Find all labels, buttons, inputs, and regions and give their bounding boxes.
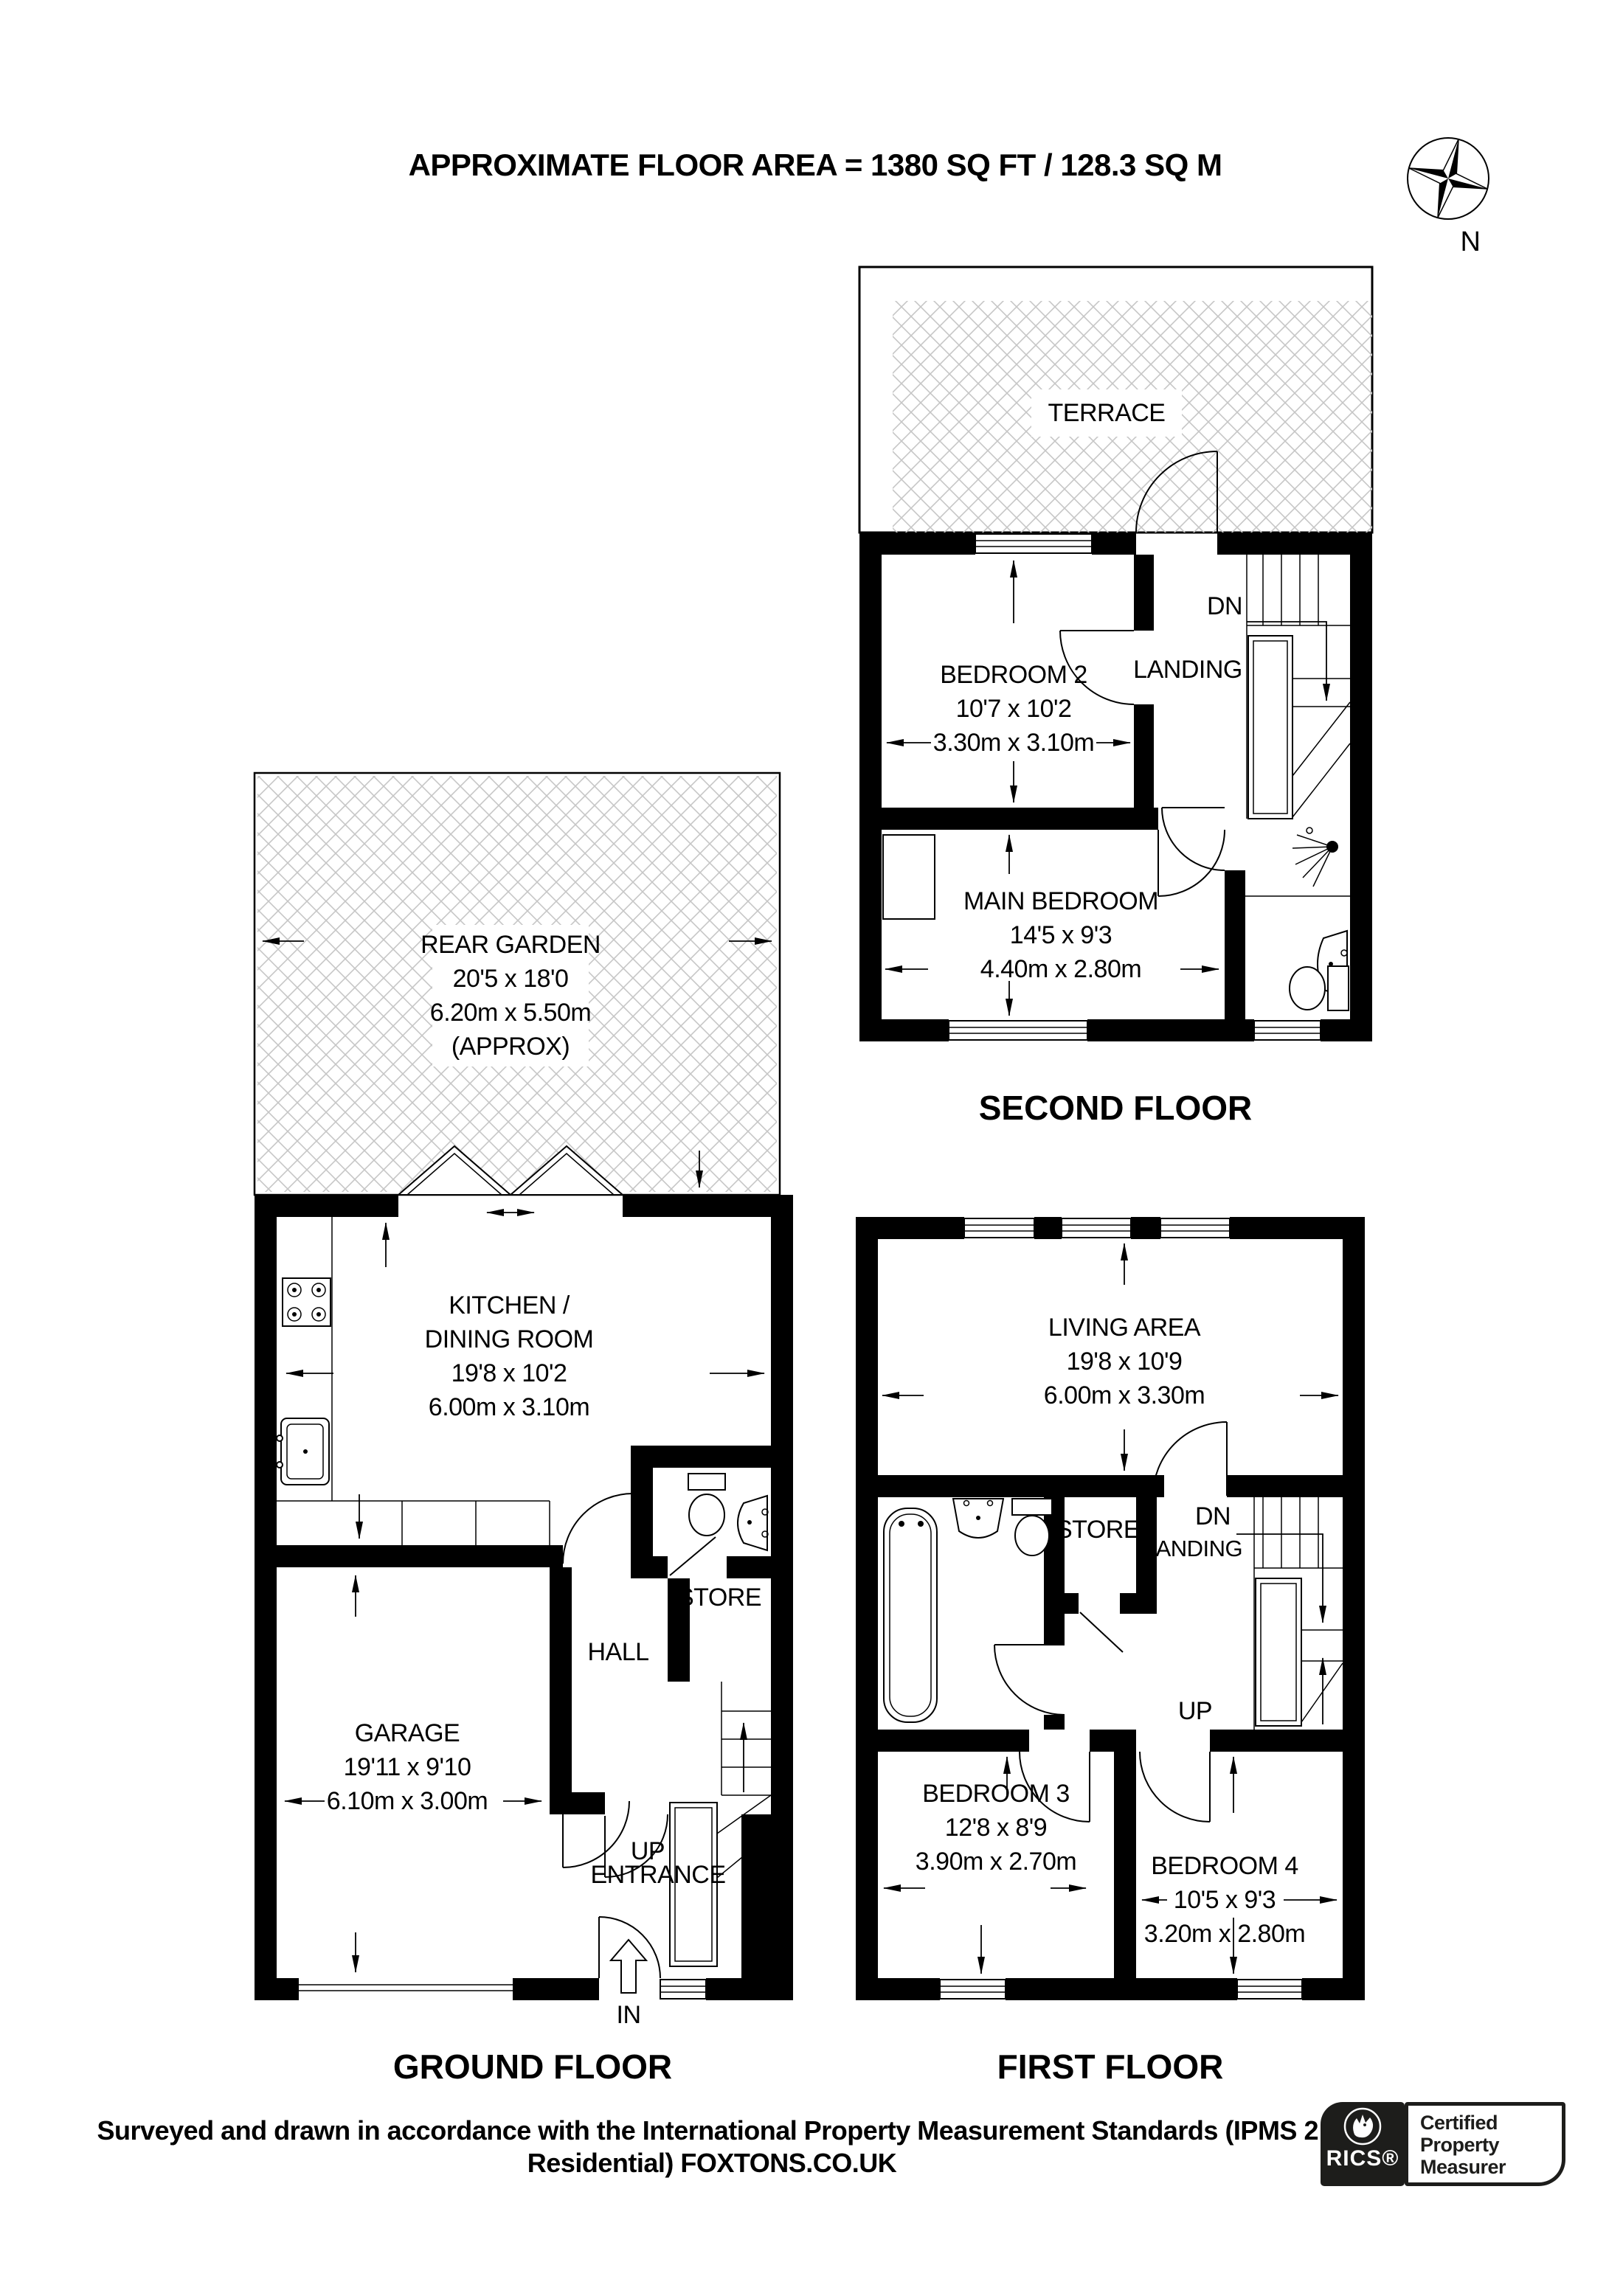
floor-title-ground: GROUND FLOOR <box>393 2050 672 2084</box>
rics-badge-text: Certified Property Measurer <box>1405 2102 1565 2186</box>
bathroom-sink-icon <box>953 1499 1003 1538</box>
rics-logo: RICS® <box>1321 2102 1405 2186</box>
wc-basin-icon <box>738 1496 768 1550</box>
kitchen-sink-icon <box>277 1418 329 1485</box>
room-label-rear-garden: REAR GARDEN 20'5 x 18'0 6.20m x 5.50m (A… <box>421 928 601 1064</box>
room-label-bedroom3: BEDROOM 3 12'8 x 8'9 3.90m x 2.70m <box>916 1777 1076 1879</box>
north-arrow-icon <box>1408 138 1489 219</box>
stairs-up-label-1f: UP <box>1178 1694 1212 1728</box>
toilet-icon <box>1012 1499 1052 1555</box>
floorplan-page: APPROXIMATE FLOOR AREA = 1380 SQ FT / 12… <box>0 0 1623 2296</box>
rics-lion-icon <box>1340 2106 1385 2146</box>
floor-title-first: FIRST FLOOR <box>997 2050 1224 2084</box>
floorplan-drawing <box>0 0 1623 2296</box>
room-label-landing-1f: LANDING <box>1143 1532 1242 1566</box>
floor-title-second: SECOND FLOOR <box>979 1091 1253 1125</box>
room-label-bedroom2: BEDROOM 2 10'7 x 10'2 3.30m x 3.10m <box>933 658 1094 760</box>
room-label-main-bedroom: MAIN BEDROOM 14'5 x 9'3 4.40m x 2.80m <box>963 884 1158 986</box>
stairs-dn-label-2f: DN <box>1207 589 1242 623</box>
room-label-living-area: LIVING AREA 19'8 x 10'9 6.00m x 3.30m <box>1044 1311 1205 1412</box>
room-label-entrance: ENTRANCE <box>590 1858 725 1892</box>
room-label-garage: GARAGE 19'11 x 9'10 6.10m x 3.00m <box>327 1716 488 1818</box>
room-label-kitchen: KITCHEN / DINING ROOM 19'8 x 10'2 6.00m … <box>425 1289 594 1424</box>
staircase <box>1247 555 1350 819</box>
room-label-store-gf: STORE <box>677 1581 761 1615</box>
stairs-dn-label-1f: DN <box>1195 1499 1231 1533</box>
rics-certified-badge: RICS® Certified Property Measurer <box>1321 2102 1565 2186</box>
toilet-icon <box>1290 966 1349 1010</box>
room-label-hall: HALL <box>587 1635 648 1669</box>
shower-icon <box>1245 828 1350 896</box>
hob-icon <box>283 1278 331 1326</box>
room-label-store-1f: STORE <box>1056 1513 1140 1547</box>
staircase <box>1236 1497 1343 1730</box>
entrance-in-arrow-icon <box>611 1940 646 1993</box>
room-label-bedroom4: BEDROOM 4 10'5 x 9'3 3.20m x 2.80m <box>1144 1849 1305 1951</box>
footer-standards-line2: Residential) FOXTONS.CO.UK <box>527 2148 896 2179</box>
room-label-terrace: TERRACE <box>1038 393 1176 433</box>
compass-north-label: N <box>1461 225 1481 259</box>
bath-icon <box>884 1508 937 1722</box>
entrance-in-label: IN <box>617 1998 641 2032</box>
wc-toilet-icon <box>688 1474 725 1536</box>
page-title: APPROXIMATE FLOOR AREA = 1380 SQ FT / 12… <box>409 148 1222 183</box>
room-label-landing-2f: LANDING <box>1133 653 1242 687</box>
footer-standards-line1: Surveyed and drawn in accordance with th… <box>97 2115 1327 2146</box>
